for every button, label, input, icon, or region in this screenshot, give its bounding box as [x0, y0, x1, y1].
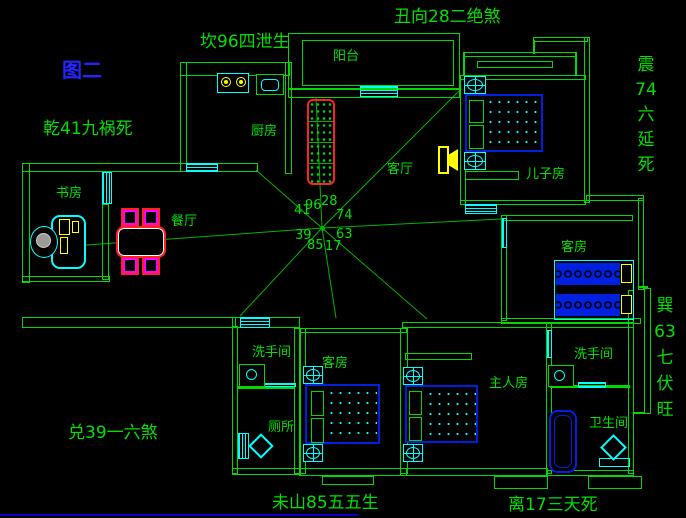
room-label-son: 儿子房	[526, 168, 565, 182]
wall	[232, 468, 301, 475]
room-label-guest-right: 客房	[561, 241, 587, 255]
door	[502, 218, 507, 248]
dining-table	[116, 226, 166, 258]
annotation-xun-seg: 七	[657, 345, 674, 371]
nightstand	[303, 366, 323, 384]
room-label-study: 书房	[56, 187, 82, 201]
annotation-zhen-seg: 死	[638, 153, 655, 178]
speaker	[438, 146, 449, 174]
wall	[533, 37, 588, 42]
room-label-balcony: 阳台	[333, 50, 359, 64]
stove-burner	[221, 77, 231, 87]
wall	[575, 52, 577, 75]
nightstand	[403, 444, 423, 462]
wall	[463, 52, 465, 75]
pillow	[621, 295, 632, 314]
compass-hub	[320, 226, 325, 231]
wall	[22, 163, 258, 172]
nightstand	[403, 367, 423, 385]
annotation-dui: 兑39一六煞	[68, 424, 158, 443]
window	[240, 317, 270, 328]
headboard	[469, 125, 484, 149]
keyboard	[60, 237, 68, 254]
compass-number-n: 28	[321, 195, 338, 208]
annotation-zhen-seg: 震	[638, 53, 655, 78]
wall	[586, 195, 644, 201]
pillow	[621, 264, 632, 283]
wall	[501, 215, 633, 221]
chair-seat	[36, 233, 51, 248]
shelf	[465, 171, 519, 180]
annotation-xun-seg: 旺	[657, 397, 674, 423]
toilet-base	[599, 458, 630, 467]
sink-basin	[554, 370, 565, 381]
annotation-li: 离17三天死	[508, 496, 598, 515]
room-label-dining: 餐厅	[171, 215, 197, 229]
annotation-zhen: 震 74 六 延 死	[633, 53, 659, 178]
annotation-kan: 坎96四泄生	[200, 33, 290, 52]
wall	[400, 468, 548, 476]
wall	[633, 412, 645, 414]
wall-balcony-inner	[302, 40, 454, 86]
room-label-washroom-left: 洗手间	[252, 346, 291, 360]
window	[465, 204, 497, 214]
wall	[22, 276, 110, 282]
annotation-wei: 未山85五五生	[272, 494, 379, 513]
headboard	[311, 391, 324, 416]
figure-label: 图二	[62, 54, 102, 83]
room-label-guest-bottom: 客房	[322, 357, 348, 371]
stove-burner	[236, 77, 246, 87]
room-label-master: 主人房	[489, 377, 528, 391]
chair	[142, 208, 160, 227]
wall	[180, 62, 187, 172]
wall	[638, 198, 644, 290]
annotation-zhen-seg: 74	[635, 78, 657, 103]
nightstand	[464, 152, 486, 170]
mattress	[486, 97, 540, 149]
compass-number-se: 17	[325, 240, 342, 253]
kitchen-sink-basin	[261, 79, 279, 91]
room-label-washroom-right: 洗手间	[574, 348, 613, 362]
wall	[584, 37, 590, 203]
annotation-xun-seg: 巽	[657, 293, 674, 319]
door	[260, 383, 296, 387]
wall	[22, 317, 236, 328]
floor-plan-canvas: 41 96 28 74 63 17 85 39 阳台 厨房 客厅 儿子房 书房 …	[0, 0, 686, 518]
wall-step	[322, 476, 374, 485]
headboard	[409, 417, 422, 441]
annotation-chou: 丑向28二绝煞	[394, 8, 501, 27]
wall	[299, 468, 407, 476]
wall	[102, 204, 109, 280]
room-label-toilet: 厕所	[268, 421, 294, 435]
mattress	[327, 388, 377, 441]
annotation-xun-seg: 63	[654, 319, 676, 345]
wall	[463, 52, 577, 57]
window	[360, 86, 398, 97]
annotation-qian: 乾41九祸死	[43, 120, 133, 139]
annotation-zhen-seg: 延	[638, 128, 655, 153]
window	[578, 382, 606, 388]
wall	[22, 163, 30, 283]
computer	[72, 221, 79, 233]
window	[102, 172, 112, 204]
chair	[121, 256, 139, 275]
plant	[307, 99, 335, 185]
bay-shelf	[477, 61, 553, 68]
room-label-kitchen: 厨房	[251, 125, 277, 139]
wall	[644, 288, 651, 414]
annotation-zhen-seg: 六	[638, 103, 655, 128]
bathtub	[549, 410, 577, 473]
room-label-living: 客厅	[387, 163, 413, 177]
room-label-bathroom: 卫生间	[589, 417, 628, 431]
mattress	[426, 389, 476, 441]
headboard	[469, 100, 484, 123]
drawing-area-edge	[0, 514, 358, 516]
wall	[299, 328, 407, 333]
wall-step	[588, 476, 642, 489]
door	[547, 330, 552, 358]
window	[186, 163, 218, 172]
headboard	[311, 418, 324, 443]
chair	[121, 208, 139, 227]
annotation-xun-seg: 伏	[657, 371, 674, 397]
bed	[556, 294, 620, 316]
wall-step	[494, 476, 548, 489]
monitor	[59, 219, 70, 235]
compass-number-nw: 96	[305, 199, 322, 212]
wall	[402, 322, 634, 328]
compass-number-ne: 74	[336, 209, 353, 222]
headboard	[409, 391, 422, 415]
sink-basin	[246, 369, 257, 380]
nightstand	[464, 76, 486, 94]
chair	[142, 256, 160, 275]
compass-number-sw: 39	[295, 229, 312, 242]
shelf	[405, 353, 472, 360]
annotation-xun: 巽 63 七 伏 旺	[652, 293, 678, 423]
nightstand	[303, 444, 323, 462]
bed	[556, 263, 620, 285]
wall	[294, 328, 301, 474]
